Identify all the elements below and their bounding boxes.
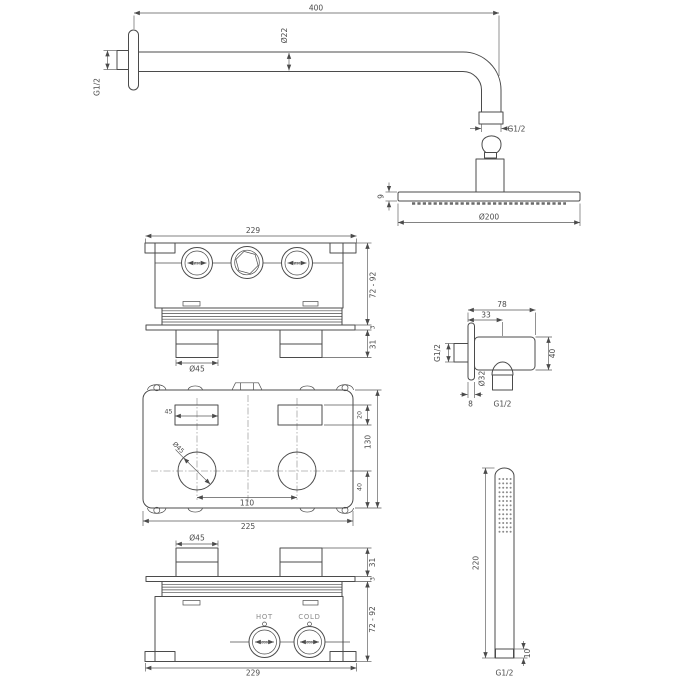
slot-right <box>278 405 322 425</box>
slot-width-label: 45 <box>164 409 172 416</box>
outlet-wall-flange <box>468 323 475 380</box>
cold-port: Ø30 <box>294 627 325 658</box>
connector-height-label: 10 <box>523 649 532 659</box>
handle-height-label: 31 <box>368 558 377 568</box>
wall-thread-label: G1/2 <box>93 78 102 96</box>
port-bore-label: Ø30 <box>261 639 267 644</box>
shower-arm-tube <box>139 52 502 112</box>
outlet-hose-thread-label: G1/2 <box>494 400 512 409</box>
hand-shower-length-label: 220 <box>472 556 481 571</box>
valve-width-label: 229 <box>246 669 261 678</box>
handle-left <box>176 548 218 577</box>
head-connector-cylinder <box>476 159 504 192</box>
wall-flange <box>129 30 139 90</box>
technical-drawing-page: 400 Ø22 G1/2 G1/2 9 <box>0 0 685 685</box>
port-bore-label: Ø30 <box>294 260 300 265</box>
handle-right <box>280 548 322 577</box>
flange-thickness-label: 8 <box>468 400 473 409</box>
body-slot-right <box>303 601 318 606</box>
dim-handle-diameter: Ø45 <box>176 360 218 374</box>
dim-plan-width: 225 <box>143 511 353 531</box>
plan-width-label: 225 <box>241 522 256 531</box>
wall-thread-connector <box>117 51 129 70</box>
body-slot-right <box>303 302 318 307</box>
shower-set-technical-drawing: 400 Ø22 G1/2 G1/2 9 <box>0 0 685 685</box>
dim-hand-shower-connector: 10 <box>514 641 532 666</box>
dim-outlet-wall-thread: G1/2 <box>433 344 454 363</box>
dim-slot-width: 45 <box>164 409 218 417</box>
arm-length-label: 400 <box>309 4 324 13</box>
head-thickness-label: 9 <box>377 194 386 199</box>
dim-head-thickness: 9 <box>377 183 398 211</box>
adjustment-ring <box>162 308 342 325</box>
plate-thickness-label: 3 <box>370 577 377 581</box>
wall-outlet-view: 78 33 G1/2 40 Ø32 8 G1/2 <box>433 300 557 409</box>
dim-head-diameter: Ø200 <box>398 204 580 227</box>
depth-range-label: 72 - 92 <box>369 271 378 298</box>
outlet-width-label: 78 <box>497 300 507 309</box>
hand-shower-thread <box>496 649 514 658</box>
outlet-hose-thread <box>493 375 513 390</box>
hex-socket <box>236 251 258 273</box>
dim-valve-width-bottom: 229 <box>146 663 357 678</box>
handle-spacing-label: 110 <box>240 499 255 508</box>
handle-hole-diameter-label: Ø45 <box>171 440 186 455</box>
arm-diameter-label: Ø22 <box>280 28 289 44</box>
outlet-wall-thread-label: G1/2 <box>433 344 442 362</box>
arm-thread-nut <box>479 112 503 124</box>
head-diameter-label: Ø200 <box>479 213 499 222</box>
trim-plate <box>146 577 355 582</box>
hot-indicator-hole <box>263 622 267 626</box>
outlet-height-label: 40 <box>548 349 557 359</box>
slot-depth-label: 20 <box>357 411 364 419</box>
port-bore-label: Ø30 <box>194 260 200 265</box>
handle-height-label: 31 <box>369 340 378 350</box>
dim-wall-thread: G1/2 <box>93 51 117 96</box>
dim-valve-depth-bottom: 31 3 72 - 92 <box>322 548 377 662</box>
spray-face-dots <box>499 478 512 533</box>
slot-left <box>175 405 218 425</box>
mounting-tab-left <box>145 243 175 253</box>
mixed-outlet-port <box>231 247 263 279</box>
outlet-offset-label: 33 <box>481 311 491 320</box>
hand-shower-thread-label: G1/2 <box>496 669 514 678</box>
dim-outlet-width: 78 <box>468 300 536 335</box>
valve-front-view: Ø30 Ø30 229 <box>145 226 378 374</box>
valve-body <box>155 597 343 662</box>
hand-shower-view: 220 10 G1/2 <box>472 468 533 678</box>
dim-handle-spacing: 110 <box>197 498 297 508</box>
outlet-diameter-label: Ø32 <box>478 371 487 387</box>
overhead-shower-arm-view: 400 Ø22 G1/2 G1/2 9 <box>93 4 581 227</box>
body-slot-left <box>183 302 200 307</box>
outlet-wall-thread <box>454 344 468 363</box>
ball-joint <box>482 136 501 158</box>
handle-axis-offset-label: 40 <box>357 483 364 491</box>
dim-handle-diameter-bottom: Ø45 <box>176 534 218 547</box>
outlet-boss <box>492 362 513 375</box>
handle-diameter-label: Ø45 <box>189 365 205 374</box>
dim-handle-hole-diameter: Ø45 <box>171 440 210 484</box>
dim-head-thread: G1/2 <box>470 125 526 134</box>
handle-right <box>280 330 322 358</box>
dim-outlet-height: 40 <box>536 337 558 370</box>
outlet-body <box>475 337 536 370</box>
plan-depth-label: 130 <box>364 435 373 450</box>
hot-label: HOT <box>256 613 273 621</box>
cold-label: COLD <box>298 613 320 621</box>
plate-thickness-label: 3 <box>370 325 377 329</box>
dim-valve-depth: 72 - 92 3 31 <box>322 243 378 358</box>
dim-arm-diameter: Ø22 <box>280 28 289 71</box>
valve-plan-view: 45 Ø45 110 20 130 40 <box>143 383 382 531</box>
port-bore-label: Ø30 <box>306 639 312 644</box>
adjustment-ring <box>162 582 342 597</box>
valve-bottom-view: Ø45 HOT COLD Ø30 <box>145 534 377 678</box>
dim-slot-depth: 20 <box>324 405 372 425</box>
depth-range-label: 72 - 92 <box>368 606 377 633</box>
hot-port: Ø30 <box>249 627 280 658</box>
inlet-port-left: Ø30 <box>182 248 213 279</box>
handle-diameter-label: Ø45 <box>189 534 205 543</box>
valve-width-label: 229 <box>246 226 261 235</box>
inlet-port-right: Ø30 <box>282 248 313 279</box>
handle-left <box>176 330 218 358</box>
dim-hand-shower-length: 220 <box>472 468 495 658</box>
mounting-tab-left <box>145 652 175 662</box>
dim-valve-width: 229 <box>146 226 357 243</box>
head-thread-label: G1/2 <box>508 125 526 134</box>
dim-arm-length: 400 <box>134 4 499 77</box>
cold-indicator-hole <box>308 622 312 626</box>
body-slot-left <box>183 601 200 606</box>
shower-head-disc <box>398 192 580 201</box>
trim-plate <box>146 325 355 330</box>
